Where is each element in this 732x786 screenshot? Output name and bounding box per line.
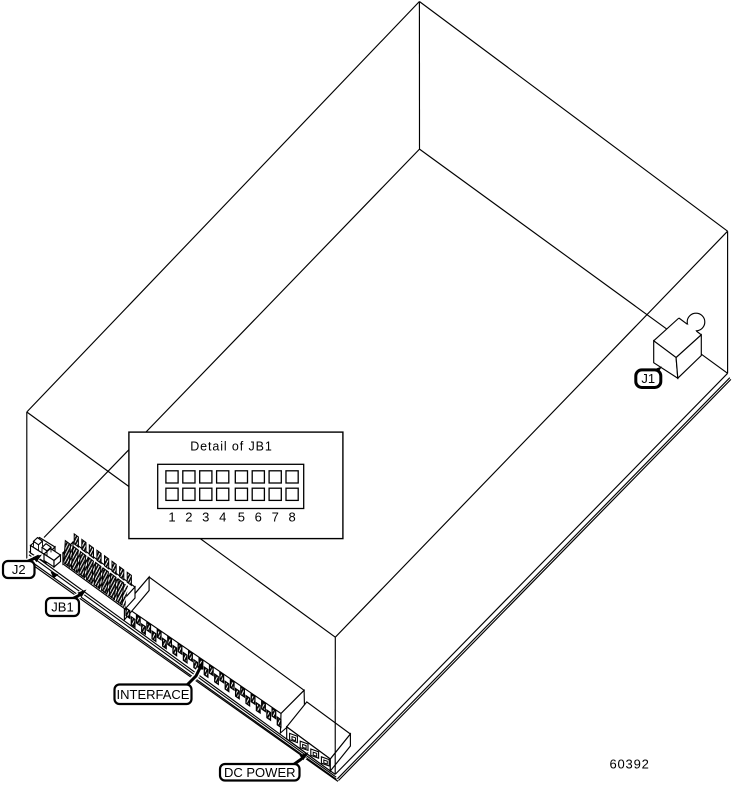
svg-text:JB1: JB1	[51, 600, 73, 615]
svg-text:J1: J1	[641, 371, 655, 386]
svg-text:8: 8	[288, 510, 295, 525]
svg-text:INTERFACE: INTERFACE	[117, 687, 190, 702]
svg-text:3: 3	[202, 510, 209, 525]
svg-text:J2: J2	[12, 562, 26, 577]
svg-text:DC POWER: DC POWER	[224, 765, 296, 780]
svg-text:Detail of JB1: Detail of JB1	[190, 440, 273, 454]
svg-text:1: 1	[168, 510, 175, 525]
svg-text:7: 7	[272, 510, 279, 525]
svg-text:4: 4	[219, 510, 226, 525]
svg-text:60392: 60392	[610, 757, 650, 772]
svg-text:6: 6	[255, 510, 262, 525]
svg-text:2: 2	[185, 510, 192, 525]
svg-text:5: 5	[238, 510, 245, 525]
